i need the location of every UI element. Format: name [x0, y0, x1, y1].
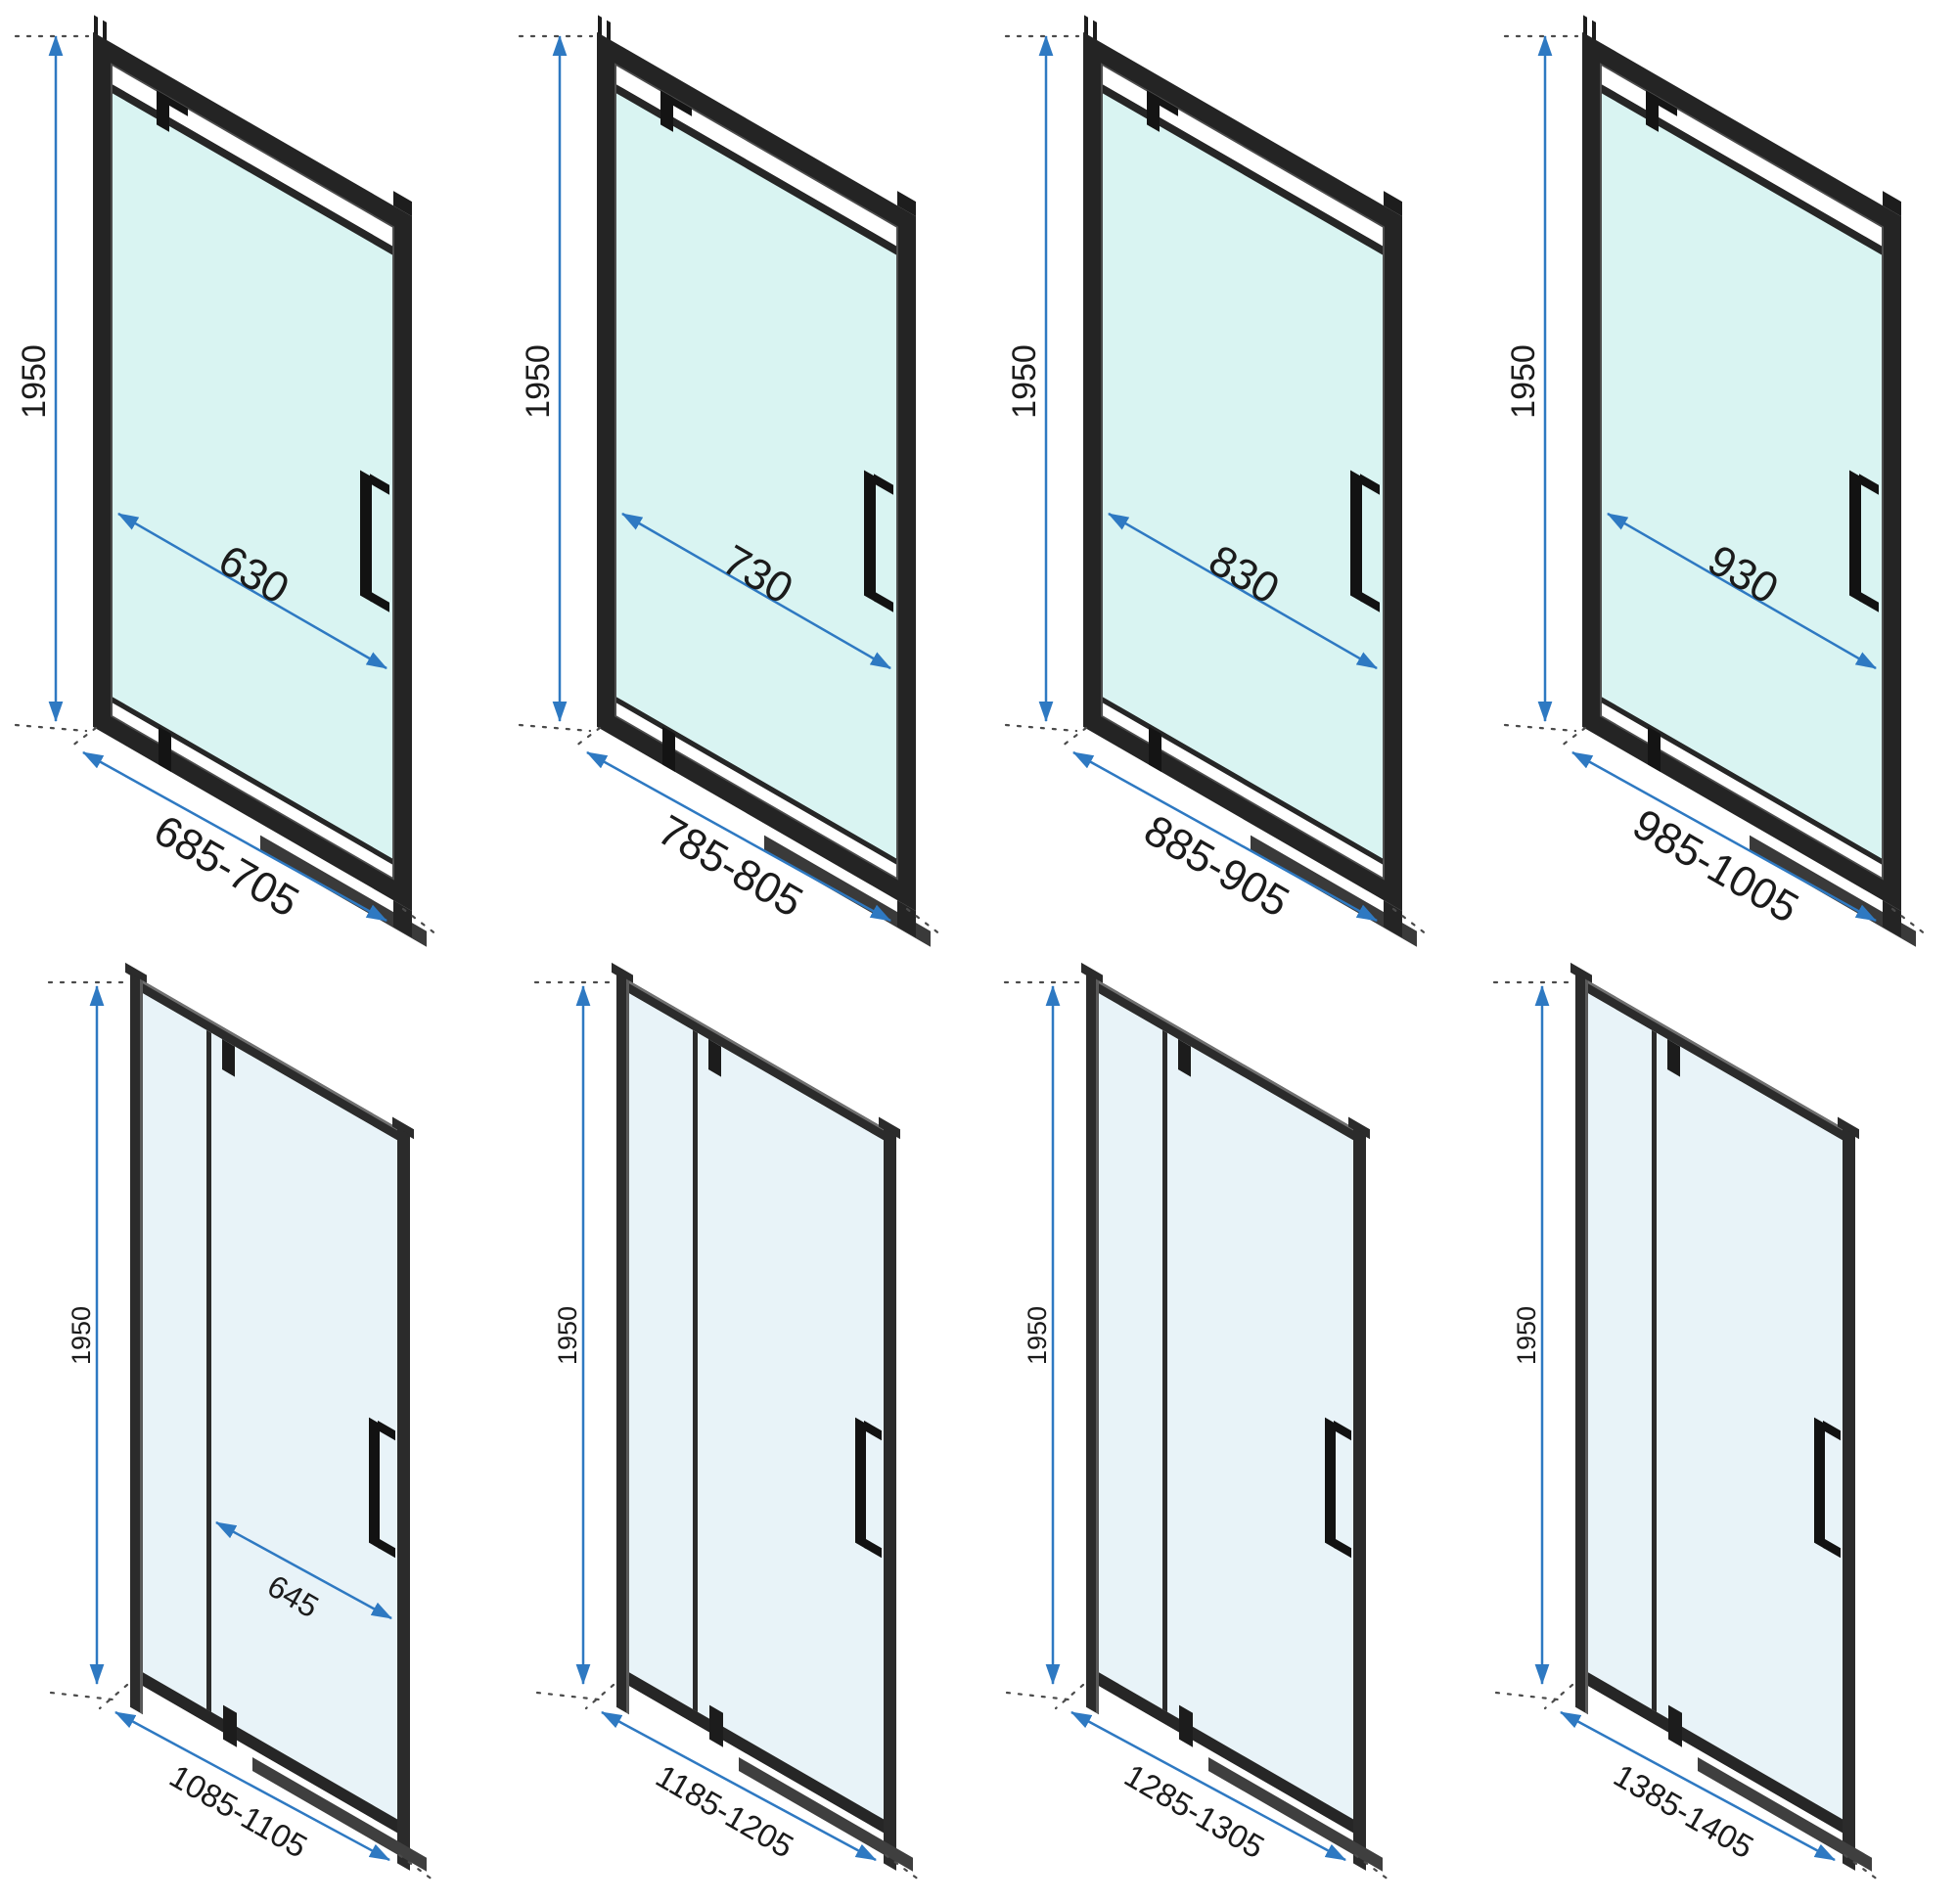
door-diagram-3: 1950 830 885-905 — [1006, 15, 1427, 947]
height-dimension-label: 1950 — [67, 1306, 96, 1365]
door-diagram-5: 1950 645 1085-1105 — [49, 963, 436, 1882]
door-artwork — [520, 15, 940, 947]
door-artwork — [535, 963, 923, 1882]
door-artwork — [1505, 15, 1926, 947]
height-dimension-label: 1950 — [553, 1306, 582, 1365]
height-dimension-label: 1950 — [520, 344, 557, 419]
door-diagram-4: 1950 930 985-1005 — [1505, 15, 1926, 947]
height-dimension-label: 1950 — [1023, 1306, 1052, 1365]
shower-door-size-chart: 1950 630 685-705 1950 730 785-805 1950 8… — [0, 0, 1957, 1904]
height-dimension-label: 1950 — [16, 344, 53, 419]
door-diagram-1: 1950 630 685-705 — [16, 15, 436, 947]
door-artwork — [1494, 963, 1882, 1882]
door-artwork — [1005, 963, 1392, 1882]
door-diagram-6: 1950 1185-1205 — [535, 963, 923, 1882]
dimension-diagram-canvas: 1950 630 685-705 1950 730 785-805 1950 8… — [0, 0, 1957, 1904]
height-dimension-label: 1950 — [1505, 344, 1542, 419]
door-artwork — [16, 15, 436, 947]
door-diagram-7: 1950 1285-1305 — [1005, 963, 1392, 1882]
door-artwork — [49, 963, 436, 1882]
door-artwork — [1006, 15, 1427, 947]
door-diagram-2: 1950 730 785-805 — [520, 15, 940, 947]
height-dimension-label: 1950 — [1512, 1306, 1541, 1365]
height-dimension-label: 1950 — [1006, 344, 1043, 419]
door-diagram-8: 1950 1385-1405 — [1494, 963, 1882, 1882]
